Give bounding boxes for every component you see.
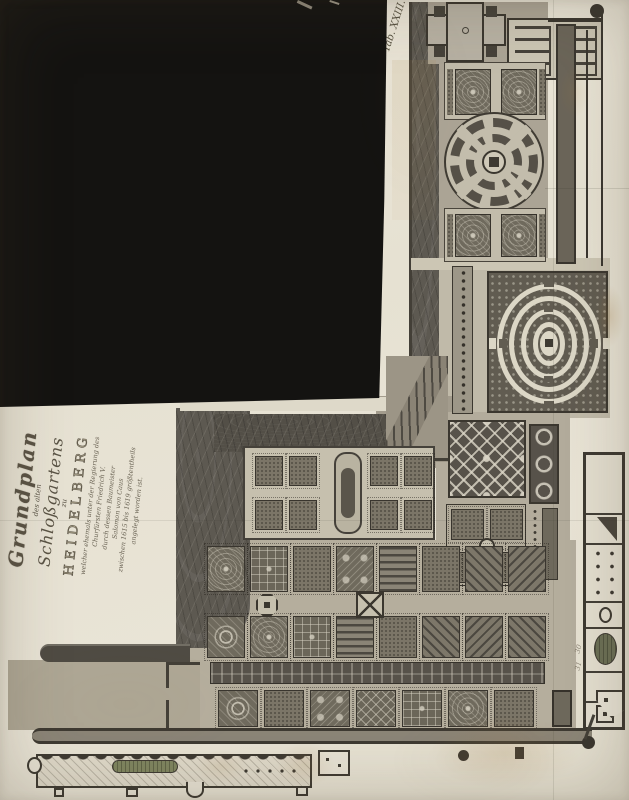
pavilion-corner-pier — [486, 46, 497, 57]
pavilion-corner-pier — [486, 6, 497, 17]
circle-motif-strip — [529, 424, 559, 504]
orangery-buttress — [54, 788, 64, 797]
parterre-bed-knot — [250, 546, 288, 592]
small-outwork-building — [318, 750, 350, 776]
pavilion-center-mark — [462, 27, 469, 34]
strip-fountain-ring — [599, 607, 612, 623]
broderie-bed — [501, 69, 537, 115]
terrace-gate-wall — [166, 664, 169, 688]
terrace-gate-wall — [166, 700, 169, 730]
cartouche-text-block: Grundplan des alten Schloßgartens zu HEI… — [0, 383, 183, 628]
broderie-side-band — [447, 69, 453, 115]
parterre-bed-quatrefoil — [336, 546, 374, 592]
grid-end-bed — [552, 690, 572, 727]
lower-left-terrace — [8, 660, 200, 730]
parterre-bed-embroidery — [207, 546, 245, 592]
strip-room-divider — [586, 543, 622, 545]
broderie-side-band — [447, 214, 453, 257]
broderie-side-band — [539, 214, 545, 257]
parterre-bed-embroidery — [448, 690, 488, 727]
pergola-band — [210, 662, 545, 684]
engraved-garden-plan: Grundplan des alten Schloßgartens zu HEI… — [0, 0, 629, 800]
parterre-bed-diag2 — [508, 546, 546, 592]
parterre-bed-knot — [402, 690, 442, 727]
maze-gap — [544, 401, 554, 407]
parterre-bed-speckle — [293, 546, 331, 592]
parterre-bed-stripes — [336, 616, 374, 658]
strip-oval-pond — [594, 633, 617, 665]
maze-gap — [499, 339, 507, 348]
parterre-bed-diag — [508, 616, 546, 658]
outwork-post — [515, 747, 524, 759]
crossing-node — [356, 592, 384, 618]
broderie-bed — [501, 214, 537, 257]
pond-bed — [289, 500, 317, 530]
pond-bed — [289, 456, 317, 486]
orangery-pool — [112, 760, 178, 773]
pond-bed — [404, 500, 432, 530]
plain-bed — [490, 509, 523, 540]
parterre-bed-diag2 — [465, 616, 503, 658]
oval-maze-parterre — [487, 271, 608, 413]
orangery-buttress — [296, 786, 308, 796]
outer-wall-line — [601, 12, 603, 266]
hillside-wall-band — [40, 644, 190, 662]
outwork-round-tower — [458, 750, 469, 761]
broderie-bed — [455, 214, 491, 257]
central-basin — [334, 452, 362, 534]
pond-bed — [370, 456, 398, 486]
maze-entrance — [603, 338, 610, 349]
strip-stair-triangle — [597, 517, 617, 541]
maze-gap — [544, 376, 553, 382]
strip-room-divider — [586, 627, 622, 629]
parterre-bed-diag — [465, 546, 503, 592]
maze-gap — [544, 281, 554, 287]
parterre-bed-speckle — [422, 546, 460, 592]
parterre-bed-rosette — [218, 690, 258, 727]
parterre-bed-speckle — [494, 690, 534, 727]
parterre-bed-speckle — [379, 616, 417, 658]
strip-room-divider — [586, 671, 622, 673]
orangery-buttress — [126, 788, 138, 797]
orangery-left-tower — [27, 757, 42, 774]
pavilion-corner-pier — [434, 6, 445, 17]
terrace-annotation-number: 30 — [573, 644, 583, 655]
maze-center-fountain — [545, 339, 553, 347]
circular-parterre — [444, 112, 544, 212]
strip-room-divider — [586, 513, 622, 515]
strip-room-divider — [586, 601, 622, 603]
pond-bed — [255, 500, 283, 530]
plan-left-wall — [409, 2, 412, 398]
title-cartouche: Grundplan des alten Schloßgartens zu HEI… — [12, 398, 172, 614]
pond-bed — [404, 456, 432, 486]
maze-gap — [590, 339, 598, 348]
plain-bed — [451, 509, 484, 540]
parterre-bed-embroidery — [250, 616, 288, 658]
orangery-column-dots — [240, 768, 300, 774]
outwork-dot — [338, 764, 341, 767]
parterre-bed-rosette — [207, 616, 245, 658]
broderie-bed — [455, 69, 491, 115]
outwork-dot — [326, 758, 329, 761]
knot-parterre — [448, 420, 526, 498]
cross-pavilion — [426, 0, 506, 62]
tree-allee-strip — [452, 266, 473, 414]
parterre-bed-lozenge — [356, 690, 396, 727]
broderie-side-band — [539, 69, 545, 115]
south-rampart-band — [32, 728, 592, 744]
hillside-upper-band — [409, 64, 439, 400]
parterre-bed-quatrefoil — [310, 690, 350, 727]
strip-room-dot — [603, 712, 607, 716]
pond-bed — [255, 456, 283, 486]
basin-water — [341, 468, 355, 518]
terrace-wall-line — [586, 30, 588, 258]
parterre-bed-stripes — [379, 546, 417, 592]
pond-bed — [370, 500, 398, 530]
east-building-strip — [583, 452, 625, 730]
parterre-bed-knot — [293, 616, 331, 658]
corner-bastion-dot — [604, 698, 608, 702]
corner-bastion-dot — [590, 4, 604, 18]
strip-column-dots — [591, 547, 619, 601]
terrace-wall-bar — [556, 24, 576, 264]
circle-center-fountain — [489, 157, 499, 167]
terrace-gate-lintel — [166, 662, 200, 665]
terrace-annotation-number: 31 — [573, 661, 583, 672]
maze-entrance — [489, 338, 496, 349]
allee-tree-dots — [458, 269, 469, 413]
pavilion-corner-pier — [434, 46, 445, 57]
corner-wall-line — [548, 19, 603, 22]
blacked-out-region — [0, 0, 387, 407]
parterre-bed-speckle — [264, 690, 304, 727]
lower-broderie-parterre-pair — [444, 208, 546, 262]
maze-gap — [544, 306, 553, 312]
octagon-node-center — [264, 602, 270, 608]
parterre-bed-diag — [422, 616, 460, 658]
orangery-apse — [186, 782, 204, 798]
